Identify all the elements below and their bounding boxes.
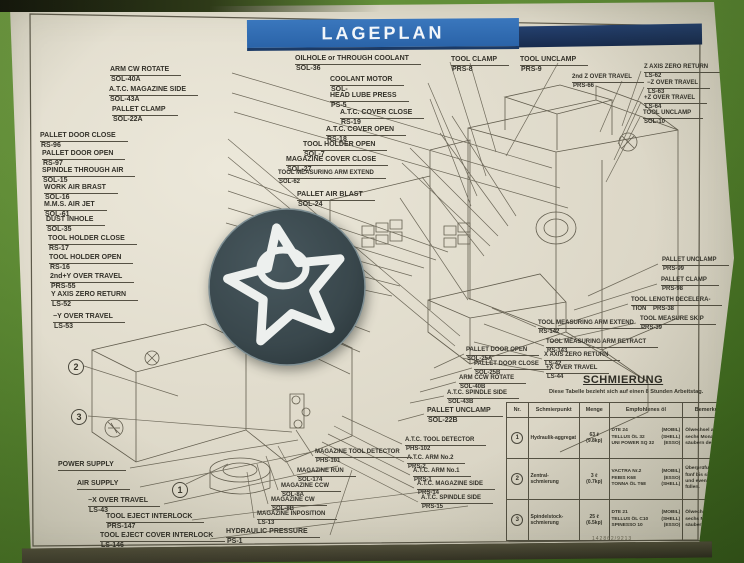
callout-text: TOOL EJECT COVER INTERLOCK xyxy=(100,532,225,542)
callout-text: A.T.C. ARM No.2 xyxy=(407,455,465,464)
schmierung-table: Nr. Schmierpunkt Menge Empfohlenes öl Be… xyxy=(506,402,737,541)
callout-text: HEAD LUBE PRESS xyxy=(330,92,409,102)
callout-sub: LS-62 xyxy=(644,73,720,81)
top-edge-shadow xyxy=(0,0,380,12)
callout-text: A.T.C. SPINDLE SIDE xyxy=(421,495,493,504)
menge-kp: (0.7kp) xyxy=(582,479,607,485)
callout-text: MAGAZINE INPOSITION xyxy=(257,511,337,520)
callout-label: POWER SUPPLY xyxy=(58,461,126,471)
callout-text: POWER SUPPLY xyxy=(58,461,126,471)
callout-text: 2nd+Y OVER TRAVEL xyxy=(50,273,134,283)
bemerkung-cell: Ölwechsel alle sechs Monate und säubern … xyxy=(683,500,737,541)
callout-text: A.T.C. COVER CLOSE xyxy=(340,109,424,119)
callout-label: TOOL HOLDER OPENRS-16 xyxy=(49,254,133,273)
callout-label: SPINDLE THROUGH AIRSOL-15 xyxy=(42,167,135,186)
callout-sub: PHS-102 xyxy=(405,446,486,454)
callout-text: MAGAZINE CW xyxy=(271,497,327,506)
callout-text: −Z OVER TRAVEL xyxy=(647,80,710,89)
callout-label: −Z OVER TRAVELLS-63 xyxy=(647,80,710,96)
bemerkung-cell: Ölwechsel alle sechs Monate und säubern … xyxy=(683,418,737,459)
table-row: 3 Spindelstock-schmierung 25 ℓ(6.5kp) DT… xyxy=(507,500,737,541)
oil-name: UNI POWER SQ 32 xyxy=(612,441,655,447)
callout-sub: SOL-22A xyxy=(112,116,178,125)
callout-text: PALLET DOOR OPEN xyxy=(466,347,539,356)
callout-sub: PRS-8 xyxy=(451,66,509,75)
callout-label: DUST INHOLESOL-35 xyxy=(46,216,105,235)
oil-brand: (SHELL) xyxy=(661,482,680,488)
callout-label: Z AXIS ZERO RETURNLS-62 xyxy=(644,64,720,80)
page-title: LAGEPLAN xyxy=(321,22,444,44)
schmierpunkt-cell: Spindelstock-schmierung xyxy=(528,500,579,541)
schmierung-note: Diese Tabelle bezieht sich auf einen 8 S… xyxy=(549,389,711,396)
row-nr-badge: 3 xyxy=(511,514,523,526)
callout-text: PALLET CLAMP xyxy=(112,106,178,116)
callout-text: DUST INHOLE xyxy=(46,216,105,226)
col-menge: Menge xyxy=(579,403,609,418)
callout-text: A.T.C. ARM No.1 xyxy=(413,468,471,477)
callout-label: PALLET CLAMPSOL-22A xyxy=(112,106,178,125)
callout-label: WORK AIR BRASTSOL-16 xyxy=(44,184,118,203)
menge-kp: (9.8kp) xyxy=(582,438,607,444)
callout-text: M.M.S. AIR JET xyxy=(44,201,107,211)
col-oel: Empfohlenes öl xyxy=(609,403,683,418)
callout-label: OILHOLE or THROUGH COOLANTSOL-36 xyxy=(295,55,421,74)
oil-brand: (ESSO) xyxy=(664,523,681,529)
callout-label: AIR SUPPLY xyxy=(77,480,130,490)
schmierpunkt-cell: Hydraulik-aggregat xyxy=(528,418,579,459)
callout-text: X AXIS ZERO RETURN xyxy=(544,352,620,361)
callout-sub: SOL-36 xyxy=(295,65,421,74)
callout-label: TOOL UNCLAMPSOL-10 xyxy=(643,110,703,126)
callout-label: PALLET UNCLAMPSOL-22B xyxy=(427,407,503,426)
row-nr-badge: 2 xyxy=(511,473,523,485)
callout-label: TOOL EJECT INTERLOCKPRS-147 xyxy=(106,513,204,532)
oil-name: SPINESSO 10 xyxy=(612,523,643,529)
callout-text: A.T.C. COVER OPEN xyxy=(326,126,406,136)
menge-kp: (6.5kp) xyxy=(582,520,607,526)
callout-sub: PRS-39 xyxy=(640,325,716,333)
callout-text: MAGAZINE CCW xyxy=(281,483,341,492)
callout-text: PALLET UNCLAMP xyxy=(662,257,729,266)
callout-sub: SOL-35 xyxy=(46,226,105,235)
callout-label: TOOL UNCLAMPPRS-9 xyxy=(520,56,588,75)
callout-text: −Y OVER TRAVEL xyxy=(53,313,125,323)
callout-text: TOOL HOLDER OPEN xyxy=(303,141,387,151)
callout-label: Y AXIS ZERO RETURNLS-52 xyxy=(51,291,138,310)
callout-text: TOOL CLAMP xyxy=(451,56,509,66)
callout-sub: PRS-15 xyxy=(421,504,493,512)
callout-text: MAGAZINE TOOL DETECTOR xyxy=(315,449,412,458)
callout-text: PALLET AIR BLAST xyxy=(297,191,375,201)
callout-sub: SOL-10 xyxy=(643,119,703,127)
callout-text: +Z OVER TRAVEL xyxy=(644,95,707,104)
callout-label: 2nd Z OVER TRAVELPRS-66 xyxy=(572,74,644,90)
callout-sub: PRS-147 xyxy=(106,523,204,532)
callout-sub: PRS-99 xyxy=(662,266,729,274)
callout-text: Y AXIS ZERO RETURN xyxy=(51,291,138,301)
lageplan-poster: LAGEPLAN ARM CW ROTATESOL-40AA.T.C. MAGA… xyxy=(0,0,744,563)
callout-label: A.T.C. COVER CLOSERS-19 xyxy=(340,109,424,128)
callout-label: TOOL CLAMPPRS-8 xyxy=(451,56,509,75)
callout-label: MAGAZINE TOOL DETECTORPHS-101 xyxy=(315,449,412,465)
callout-sub: LS-53 xyxy=(53,323,125,332)
table-row: 1 Hydraulik-aggregat 63 ℓ(9.8kp) DTE 24(… xyxy=(507,418,737,459)
callout-text: MAGAZINE RUN xyxy=(297,468,356,477)
callout-label: +Z OVER TRAVELLS-64 xyxy=(644,95,707,111)
callout-text: A.T.C. TOOL DETECTOR xyxy=(405,437,486,446)
callout-sub: RS-142 xyxy=(538,329,646,337)
callout-label: ARM CW ROTATESOL-40A xyxy=(110,66,181,85)
callout-label: MAGAZINE RUNSOL-174 xyxy=(297,468,356,484)
callout-label: −Y OVER TRAVELLS-53 xyxy=(53,313,125,332)
callout-label: ARM CCW ROTATESOL-40B xyxy=(459,375,526,391)
callout-label: TOOL HOLDER CLOSERS-17 xyxy=(48,235,137,254)
callout-text: TOOL MEASURE SKIP xyxy=(640,316,716,325)
callout-text: MAGAZINE COVER CLOSE xyxy=(286,156,388,166)
callout-label: A.T.C. TOOL DETECTORPHS-102 xyxy=(405,437,486,453)
col-schmierpunkt: Schmierpunkt xyxy=(528,403,579,418)
callout-text: PALLET UNCLAMP xyxy=(427,407,503,417)
callout-text: TOOL MEASURING ARM EXTEND xyxy=(538,320,646,329)
callout-label: TOOL LENGTH DECELERA-TION PRS-38 xyxy=(631,297,722,313)
schmierpunkt-cell: Zentral-schmierung xyxy=(528,459,579,500)
callout-text: TOOL MEASURING ARM EXTEND xyxy=(278,170,386,179)
callout-label: MAGAZINE INPOSITIONLS-13 xyxy=(257,511,337,527)
oil-brand: (ESSO) xyxy=(664,441,681,447)
callout-label: 2nd+Y OVER TRAVELPRS-55 xyxy=(50,273,134,292)
callout-label: PALLET CLAMPPRS-98 xyxy=(661,277,719,293)
callout-text: ARM CW ROTATE xyxy=(110,66,181,76)
callout-sub: SOL-40A xyxy=(110,76,181,85)
callout-sub: TION PRS-38 xyxy=(631,306,722,314)
callout-label: TOOL MEASURING ARM EXTENDRS-142 xyxy=(538,320,646,336)
callout-text: PALLET DOOR CLOSE xyxy=(40,132,128,142)
callout-text: TOOL UNCLAMP xyxy=(643,110,703,119)
callout-text: TOOL EJECT INTERLOCK xyxy=(106,513,204,523)
callout-text: OILHOLE or THROUGH COOLANT xyxy=(295,55,421,65)
marker-2: 2 xyxy=(68,359,84,375)
callout-text: PALLET DOOR OPEN xyxy=(42,150,125,160)
marker-3: 3 xyxy=(71,409,87,425)
callout-label: TOOL MEASURE SKIPPRS-39 xyxy=(640,316,716,332)
callout-sub: PRS-66 xyxy=(572,83,644,91)
table-row: 2 Zentral-schmierung 3 ℓ(0.7kp) VACTRA N… xyxy=(507,459,737,500)
callout-sub: PHS-101 xyxy=(315,458,412,466)
callout-text: TOOL UNCLAMP xyxy=(520,56,588,66)
callout-sub: RS-16 xyxy=(49,264,133,273)
callout-text: −X OVER TRAVEL xyxy=(88,497,160,507)
callout-label: HYDRAULIC PRESSUREPS-1 xyxy=(226,528,320,547)
callout-text: SPINDLE THROUGH AIR xyxy=(42,167,135,177)
schmierung-heading: SCHMIERUNG xyxy=(583,374,663,386)
callout-sub: PRS-98 xyxy=(661,286,719,294)
callout-text: A.T.C. MAGAZINE SIDE xyxy=(109,86,198,96)
logo-badge xyxy=(205,205,369,369)
callout-text: ARM CCW ROTATE xyxy=(459,375,526,384)
callout-label: HEAD LUBE PRESSPS-5 xyxy=(330,92,409,111)
callout-label: A.T.C. MAGAZINE SIDESOL-43A xyxy=(109,86,198,105)
banner-navy-stripe xyxy=(516,24,702,48)
oil-name: TONNA ÖL T68 xyxy=(612,482,646,488)
callout-label: TOOL MEASURING ARM EXTENDSOL-62 xyxy=(278,170,386,186)
col-bemerkung: Bemerkung xyxy=(683,403,737,418)
callout-text: TOOL HOLDER OPEN xyxy=(49,254,133,264)
callout-text: 2nd Z OVER TRAVEL xyxy=(572,74,644,83)
callout-sub: SOL-22B xyxy=(427,417,503,426)
col-nr: Nr. xyxy=(507,403,529,418)
bemerkung-cell: Überprüfung alle fünf bis sieben Tage un… xyxy=(683,459,737,500)
callout-sub: RS-17 xyxy=(48,245,137,254)
callout-sub: SOL-62 xyxy=(278,179,386,187)
part-number: 142862/9213 xyxy=(592,536,632,542)
callout-text: A.T.C. MAGAZINE SIDE xyxy=(417,481,495,490)
row-nr-badge: 1 xyxy=(511,432,523,444)
callout-text: TOOL LENGTH DECELERA- xyxy=(631,297,722,306)
callout-text: AIR SUPPLY xyxy=(77,480,130,490)
callout-text: PALLET DOOR CLOSE xyxy=(474,361,551,370)
callout-text: Z AXIS ZERO RETURN xyxy=(644,64,720,73)
callout-sub: LS-52 xyxy=(51,301,138,310)
title-banner: LAGEPLAN xyxy=(247,18,519,51)
callout-text: A.T.C. SPINDLE SIDE xyxy=(447,390,519,399)
callout-text: PALLET CLAMP xyxy=(661,277,719,286)
callout-text: WORK AIR BRAST xyxy=(44,184,118,194)
callout-text: TOOL MEASURING ARM RETRACT xyxy=(546,339,658,348)
photo-stage: LAGEPLAN ARM CW ROTATESOL-40AA.T.C. MAGA… xyxy=(0,0,744,563)
callout-text: TOOL HOLDER CLOSE xyxy=(48,235,137,245)
callout-sub: SOL-43A xyxy=(109,96,198,105)
callout-label: PALLET UNCLAMPPRS-99 xyxy=(662,257,729,273)
callout-sub: LS-13 xyxy=(257,520,337,528)
callout-label: PALLET DOOR CLOSERS-96 xyxy=(40,132,128,151)
callout-text: COOLANT MOTOR xyxy=(330,76,404,86)
callout-label: PALLET DOOR OPENRS-97 xyxy=(42,150,125,169)
marker-1: 1 xyxy=(172,482,188,498)
callout-text: +X OVER TRAVEL xyxy=(546,365,609,374)
callout-label: A.T.C. SPINDLE SIDEPRS-15 xyxy=(421,495,493,511)
callout-text: HYDRAULIC PRESSURE xyxy=(226,528,320,538)
